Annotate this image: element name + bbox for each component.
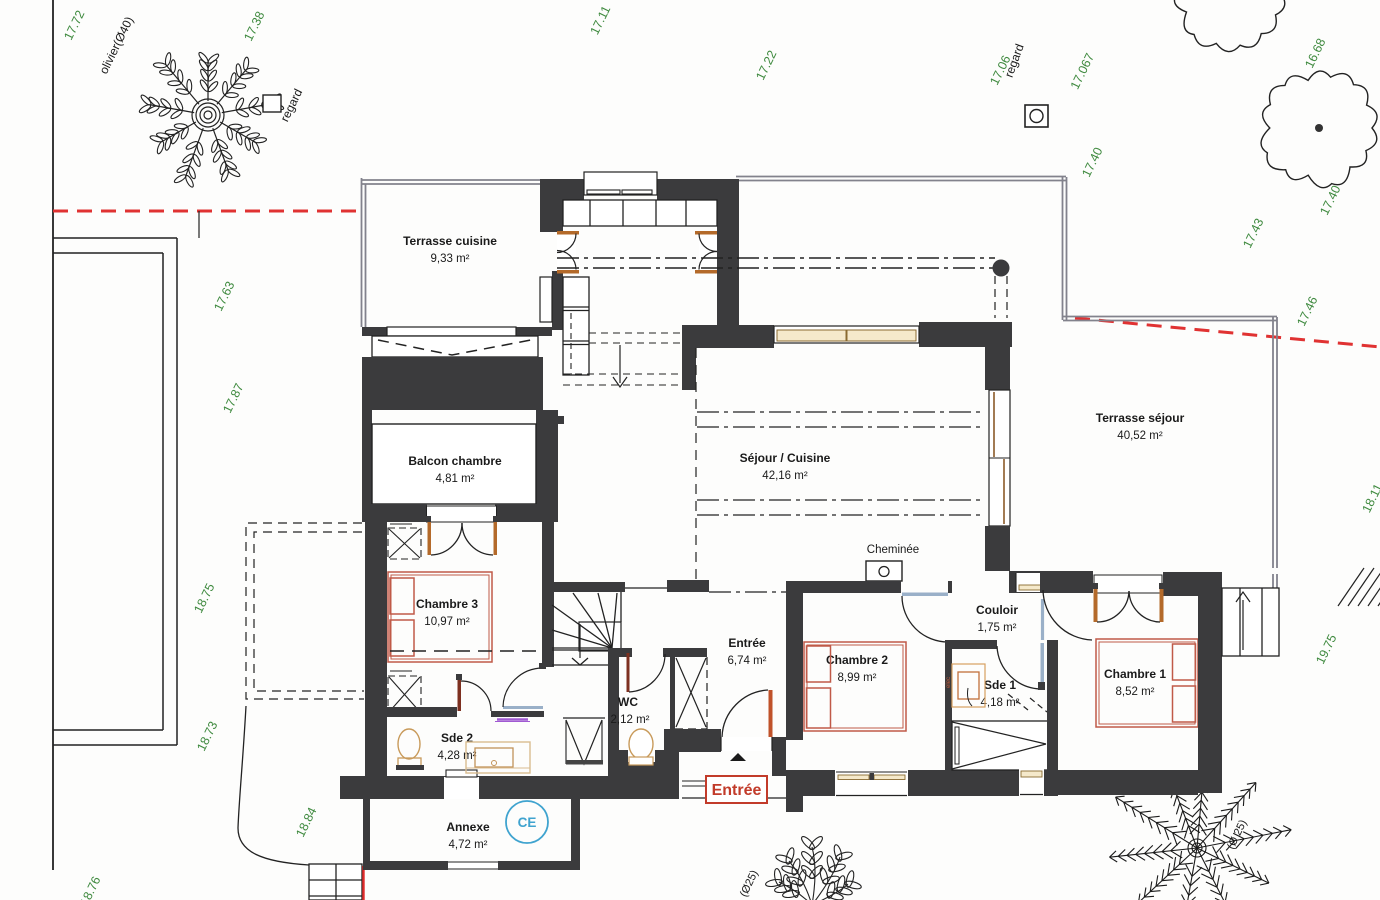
svg-text:Annexe: Annexe (446, 820, 490, 834)
svg-text:9,33 m²: 9,33 m² (431, 253, 470, 265)
svg-text:6,74 m²: 6,74 m² (728, 655, 767, 667)
svg-text:Cheminée: Cheminée (867, 544, 919, 556)
svg-text:42,16 m²: 42,16 m² (762, 470, 808, 482)
svg-text:elec: elec (946, 677, 952, 688)
svg-text:Couloir: Couloir (976, 603, 1018, 617)
svg-text:8,99 m²: 8,99 m² (838, 672, 877, 684)
svg-text:4,18 m²: 4,18 m² (981, 697, 1020, 709)
svg-text:Entrée: Entrée (728, 636, 766, 650)
svg-text:Sde 2: Sde 2 (441, 731, 473, 745)
svg-text:Terrasse séjour: Terrasse séjour (1096, 411, 1185, 425)
svg-text:Terrasse cuisine: Terrasse cuisine (403, 234, 497, 248)
svg-text:Chambre 2: Chambre 2 (826, 653, 888, 667)
svg-text:10,97 m²: 10,97 m² (424, 616, 470, 628)
svg-text:Balcon chambre: Balcon chambre (408, 454, 502, 468)
svg-text:8,52 m²: 8,52 m² (1116, 686, 1155, 698)
svg-text:Entrée: Entrée (712, 782, 762, 799)
svg-text:Chambre 3: Chambre 3 (416, 597, 478, 611)
svg-text:4,72 m²: 4,72 m² (449, 839, 488, 851)
svg-text:Chambre 1: Chambre 1 (1104, 667, 1166, 681)
svg-text:1,75 m²: 1,75 m² (978, 622, 1017, 634)
svg-text:2,12 m²: 2,12 m² (611, 714, 650, 726)
svg-text:40,52 m²: 40,52 m² (1117, 430, 1163, 442)
svg-text:4,28 m²: 4,28 m² (438, 750, 477, 762)
svg-text:Sde 1: Sde 1 (984, 678, 1016, 692)
svg-text:Séjour / Cuisine: Séjour / Cuisine (740, 451, 831, 465)
svg-text:4,81 m²: 4,81 m² (436, 473, 475, 485)
svg-text:WC: WC (618, 695, 638, 709)
svg-text:CE: CE (518, 815, 537, 830)
